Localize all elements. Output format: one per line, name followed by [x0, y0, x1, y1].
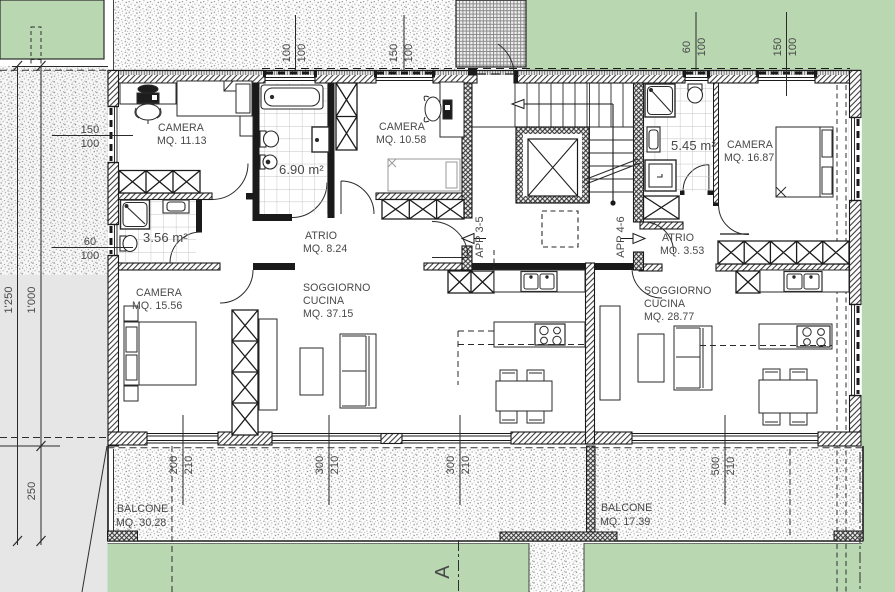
- svg-text:3.56 m²: 3.56 m²: [143, 230, 188, 245]
- svg-text:500: 500: [710, 457, 722, 476]
- svg-text:SOGGIORNO: SOGGIORNO: [303, 282, 370, 294]
- svg-text:100: 100: [81, 250, 100, 262]
- svg-text:MQ. 3.53: MQ. 3.53: [660, 245, 704, 257]
- svg-text:150: 150: [772, 38, 784, 57]
- svg-text:210: 210: [725, 457, 737, 476]
- svg-text:100: 100: [296, 44, 308, 63]
- svg-text:CUCINA: CUCINA: [644, 298, 686, 310]
- svg-text:MQ. 10.58: MQ. 10.58: [376, 134, 426, 146]
- svg-text:1'250: 1'250: [3, 286, 15, 313]
- svg-text:MQ. 37.15: MQ. 37.15: [303, 308, 353, 320]
- svg-text:ATRIO: ATRIO: [662, 232, 694, 244]
- svg-text:300: 300: [445, 456, 457, 475]
- svg-text:100: 100: [81, 138, 100, 150]
- svg-text:60: 60: [84, 236, 96, 248]
- svg-text:CAMERA: CAMERA: [158, 122, 205, 134]
- svg-text:MQ. 17.39: MQ. 17.39: [600, 516, 650, 528]
- svg-text:300: 300: [314, 456, 326, 475]
- svg-text:MQ. 15.56: MQ. 15.56: [132, 300, 182, 312]
- svg-text:A: A: [432, 565, 454, 579]
- svg-text:100: 100: [696, 38, 708, 57]
- svg-text:150: 150: [81, 124, 100, 136]
- svg-text:APP 4-6: APP 4-6: [615, 216, 627, 257]
- svg-text:SOGGIORNO: SOGGIORNO: [644, 285, 711, 297]
- svg-text:60: 60: [681, 41, 693, 53]
- svg-text:CAMERA: CAMERA: [379, 121, 426, 133]
- svg-text:CAMERA: CAMERA: [727, 139, 774, 151]
- svg-text:150: 150: [388, 44, 400, 63]
- svg-text:210: 210: [329, 456, 341, 475]
- svg-text:CUCINA: CUCINA: [303, 295, 345, 307]
- svg-text:MQ. 11.13: MQ. 11.13: [157, 135, 207, 147]
- svg-text:CAMERA: CAMERA: [136, 287, 183, 299]
- svg-text:100: 100: [281, 44, 293, 63]
- svg-text:MQ. 16.87: MQ. 16.87: [724, 152, 774, 164]
- svg-text:APP 3-5: APP 3-5: [474, 216, 486, 257]
- svg-text:ATRIO: ATRIO: [305, 230, 337, 242]
- svg-text:1'000: 1'000: [26, 286, 38, 313]
- svg-text:200: 200: [168, 456, 180, 475]
- svg-text:210: 210: [183, 456, 195, 475]
- svg-text:100: 100: [403, 44, 415, 63]
- svg-text:6.90 m²: 6.90 m²: [279, 162, 324, 177]
- svg-text:250: 250: [26, 482, 38, 501]
- svg-text:MQ. 8.24: MQ. 8.24: [303, 243, 347, 255]
- svg-text:MQ. 30.28: MQ. 30.28: [116, 517, 166, 529]
- svg-text:100: 100: [787, 38, 799, 57]
- svg-text:210: 210: [460, 456, 472, 475]
- svg-text:BALCONE: BALCONE: [601, 502, 652, 514]
- svg-text:MQ. 28.77: MQ. 28.77: [644, 311, 694, 323]
- svg-text:5.45 m²: 5.45 m²: [671, 138, 716, 153]
- svg-text:BALCONE: BALCONE: [117, 503, 168, 515]
